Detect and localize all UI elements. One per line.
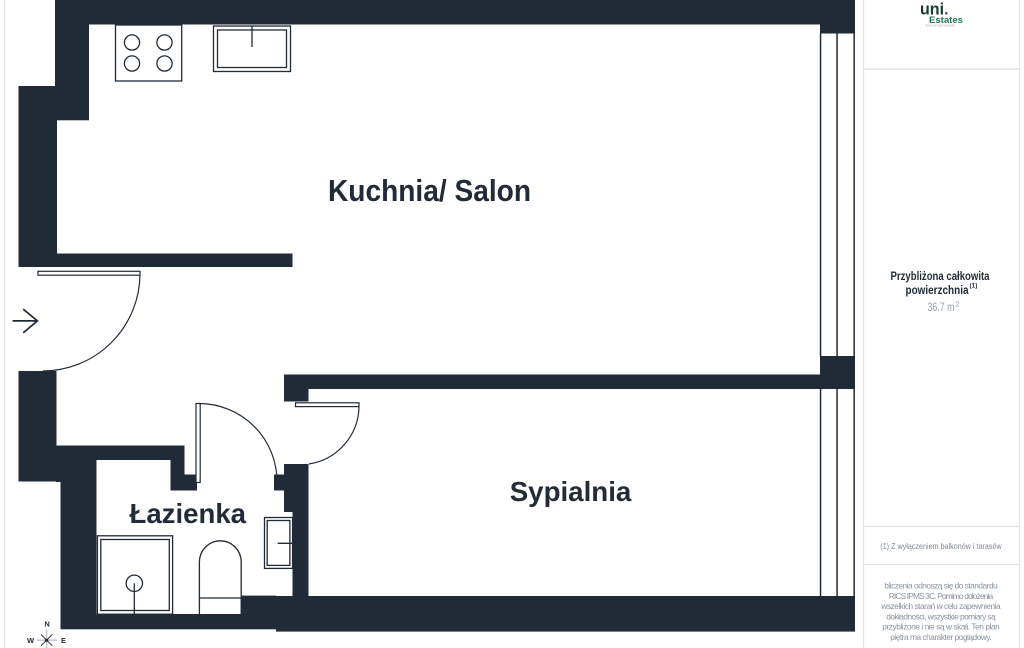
svg-text:RICS IPMS 3C. Pomimo dołożenia: RICS IPMS 3C. Pomimo dołożenia xyxy=(889,591,994,601)
svg-text:Łazienka: Łazienka xyxy=(130,498,247,529)
svg-text:Sypialnia: Sypialnia xyxy=(510,476,632,507)
svg-text:2: 2 xyxy=(956,302,960,309)
svg-text:wszelkich starań w celu zapewn: wszelkich starań w celu zapewnienia xyxy=(880,601,1001,611)
svg-text:przybliżone i nie są w skali.: przybliżone i nie są w skali. Ten plan xyxy=(882,622,1000,632)
svg-text:W: W xyxy=(27,636,35,645)
svg-text:(1) Z wyłączeniem balkonów i t: (1) Z wyłączeniem balkonów i tarasów xyxy=(880,541,1002,551)
svg-text:Kuchnia/ Salon: Kuchnia/ Salon xyxy=(328,173,531,208)
svg-text:Przybliżona całkowita: Przybliżona całkowita xyxy=(891,269,990,283)
svg-text:powierzchnia: powierzchnia xyxy=(906,283,969,297)
svg-text:(1): (1) xyxy=(970,283,978,290)
svg-text:36.7 m: 36.7 m xyxy=(928,300,955,314)
svg-text:Twój dom, Twoje miejsce, Twoja: Twój dom, Twoje miejsce, Twoja przyszłoś… xyxy=(925,23,955,27)
svg-text:piętra ma charakter poglądowy.: piętra ma charakter poglądowy. xyxy=(890,632,992,642)
svg-text:bliczenia odnoszą się do stand: bliczenia odnoszą się do standardu xyxy=(884,581,998,591)
svg-text:dokładności, wszystkie pomiary: dokładności, wszystkie pomiary są xyxy=(886,611,996,621)
svg-text:E: E xyxy=(61,636,66,645)
svg-text:N: N xyxy=(44,619,49,628)
